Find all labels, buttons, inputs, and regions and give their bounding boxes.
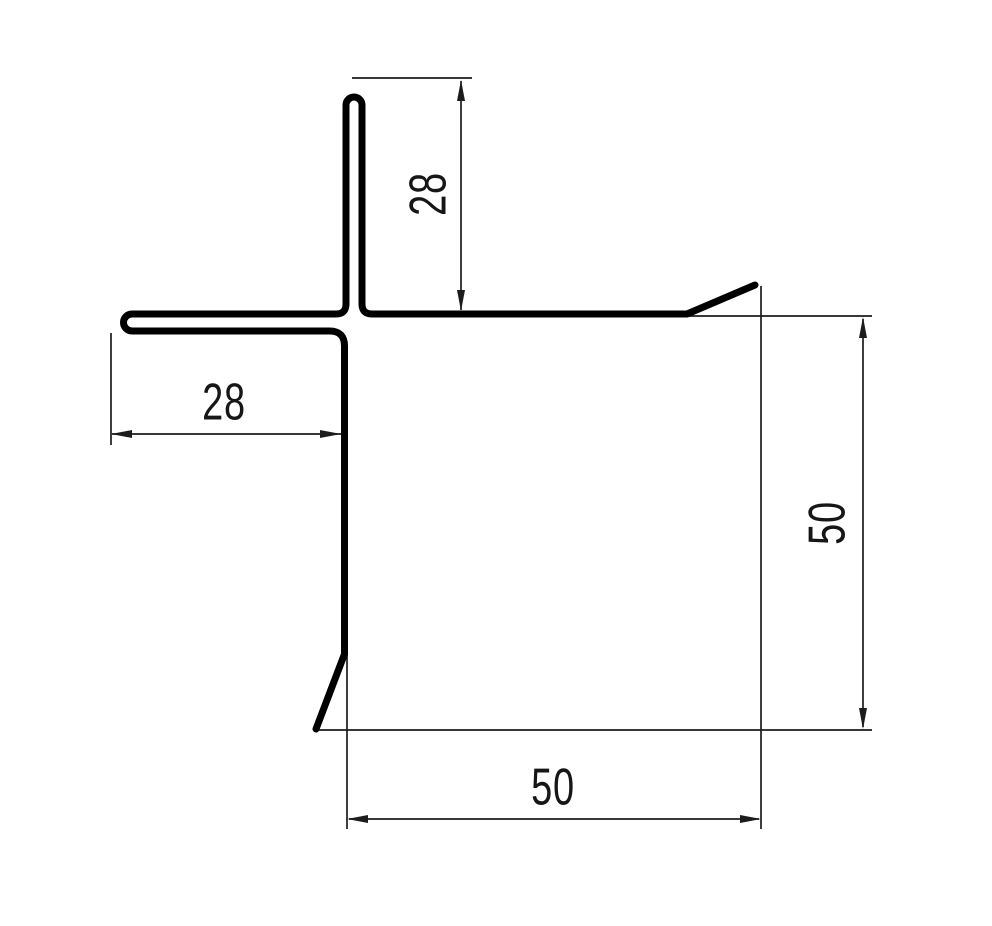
drawing-canvas: 28 28 50 50 xyxy=(0,0,992,926)
profile-drawing: 28 28 50 50 xyxy=(0,0,992,926)
dimension-label-top-flange: 28 xyxy=(399,172,457,216)
dimension-label-left-flange: 28 xyxy=(202,373,246,431)
canvas-background xyxy=(0,0,992,926)
dimension-label-right-side: 50 xyxy=(798,501,856,545)
dimension-label-bottom-side: 50 xyxy=(531,758,575,816)
